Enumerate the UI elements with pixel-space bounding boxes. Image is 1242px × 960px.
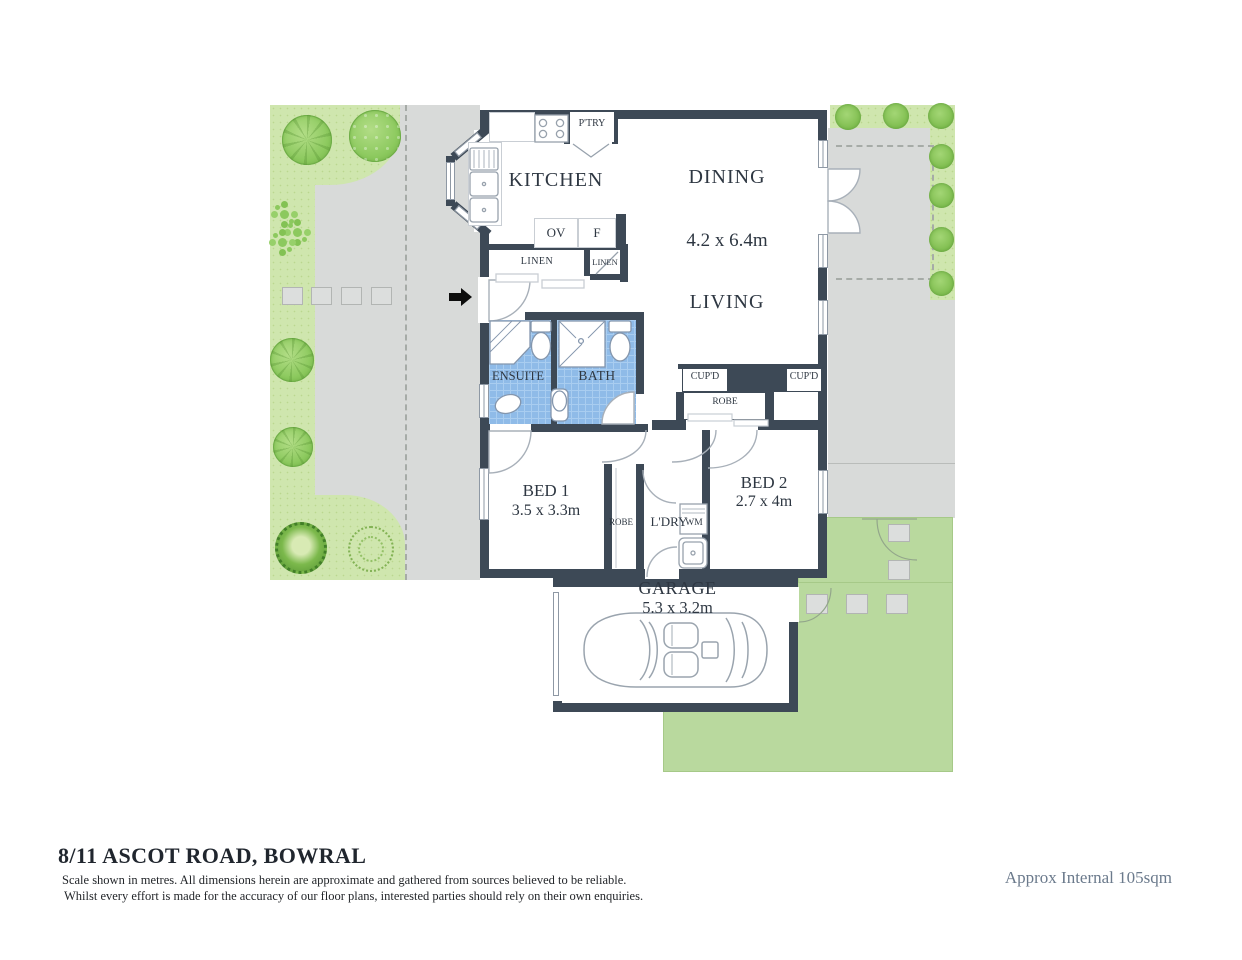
room-label-ensuite: ENSUITE <box>484 370 552 383</box>
approx-internal-area: Approx Internal 105sqm <box>1005 868 1172 888</box>
patio-dashed-boundary <box>836 145 934 280</box>
wall <box>531 424 648 432</box>
round-tree-icon <box>349 110 401 162</box>
lawn-paver <box>806 594 828 614</box>
french-door-opening <box>818 168 829 234</box>
patio-wide <box>828 300 955 463</box>
label-robe-bed1: ROBE <box>605 518 637 527</box>
lawn-paver <box>888 524 910 542</box>
flower-icon <box>293 228 302 237</box>
room-label-bed2: BED 2 <box>707 474 821 492</box>
label-pantry: P'TRY <box>570 119 614 130</box>
driveway-paver <box>282 287 303 305</box>
lawn-paver <box>886 594 908 614</box>
driveway-paver <box>311 287 332 305</box>
palm-tree-icon <box>282 115 332 165</box>
floorplan-page: KITCHEN DINING 4.2 x 6.4m LIVING P'TRY O… <box>0 0 1242 960</box>
room-dims-bed1: 3.5 x 3.3m <box>487 503 605 520</box>
room-dims-living: 4.2 x 6.4m <box>667 231 787 251</box>
wall <box>636 312 644 394</box>
flower-icon <box>278 238 287 247</box>
room-label-living: LIVING <box>667 292 787 313</box>
wall <box>590 274 622 280</box>
boundary-dashed-line <box>405 105 407 580</box>
flower-icon <box>280 210 289 219</box>
wall <box>616 214 626 250</box>
lawn-paver <box>888 560 910 580</box>
driveway-paver <box>371 287 392 305</box>
bush-icon <box>883 103 909 129</box>
driveway-paver <box>341 287 362 305</box>
garage-door-panel <box>553 592 559 696</box>
room-label-bed1: BED 1 <box>487 482 605 500</box>
garage-side-door-opening <box>787 587 799 622</box>
window-icon <box>818 234 828 268</box>
label-oven: OV <box>534 226 578 240</box>
built-in-cupboard <box>728 364 786 392</box>
shrub-outline-icon <box>348 526 394 572</box>
bush-icon <box>929 271 954 296</box>
wall <box>480 424 490 432</box>
disclaimer-line1: Scale shown in metres. All dimensions he… <box>62 873 626 888</box>
room-label-kitchen: KITCHEN <box>496 170 616 191</box>
room-dims-bed2: 2.7 x 4m <box>707 494 821 511</box>
kitchen-bench <box>489 112 535 142</box>
bush-icon <box>928 103 954 129</box>
entry-opening <box>478 277 490 323</box>
round-tree-icon <box>270 338 314 382</box>
bush-icon <box>929 227 954 252</box>
wall <box>766 392 774 422</box>
round-tree-icon <box>273 427 313 467</box>
patio-lower <box>828 463 955 518</box>
wall <box>676 392 683 430</box>
label-robe-bed2: ROBE <box>683 398 767 408</box>
room-label-bath: BATH <box>560 369 634 383</box>
bush-icon <box>929 144 954 169</box>
label-cupboard-left: CUP'D <box>680 372 730 383</box>
label-washing-machine: WM <box>678 519 710 529</box>
room-label-dining: DINING <box>667 167 787 188</box>
label-linen-large: LINEN <box>489 257 585 268</box>
page-title: 8/11 ASCOT ROAD, BOWRAL <box>58 843 366 869</box>
bush-icon <box>929 183 954 208</box>
disclaimer-line2: Whilst every effort is made for the accu… <box>64 889 643 904</box>
shrub-icon <box>275 522 327 574</box>
label-fridge: F <box>578 226 616 240</box>
lawn-paver <box>846 594 868 614</box>
window-icon <box>479 384 489 418</box>
room-dims-garage: 5.3 x 3.2m <box>615 599 740 616</box>
wall <box>525 312 644 320</box>
label-linen-small: LINEN <box>588 258 622 267</box>
window-icon <box>818 140 828 168</box>
label-cupboard-right: CUP'D <box>783 372 825 383</box>
bush-icon <box>835 104 861 130</box>
room-label-garage: GARAGE <box>615 579 740 598</box>
entry-arrow-icon <box>461 288 472 306</box>
bay-window-icon <box>446 162 455 200</box>
window-icon <box>818 300 828 335</box>
